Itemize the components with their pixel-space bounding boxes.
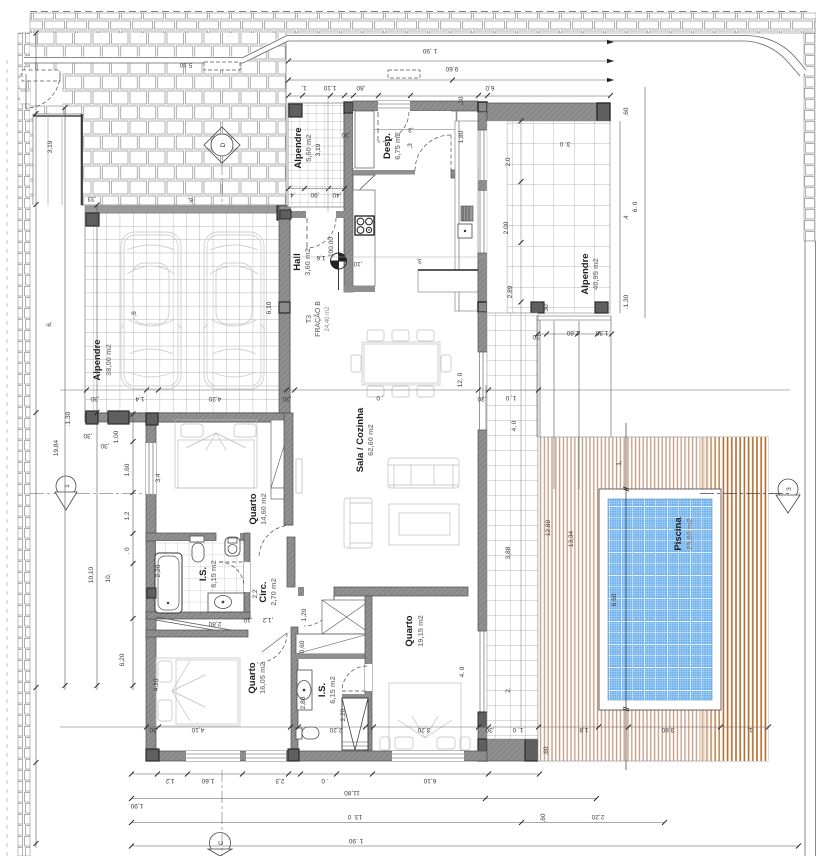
svg-text:1, 0: 1, 0 [505, 394, 516, 401]
svg-text:2,20: 2,20 [591, 813, 604, 820]
svg-text:,6: ,6 [131, 311, 138, 317]
svg-text:6,15 m2: 6,15 m2 [209, 560, 218, 588]
svg-text:4,10: 4,10 [153, 678, 160, 691]
svg-text:I.S.: I.S. [198, 567, 209, 581]
svg-text:0,60: 0,60 [299, 640, 306, 653]
svg-text:,1,2: ,1,2 [262, 616, 273, 623]
svg-text:,4: ,4 [290, 191, 296, 198]
svg-text:6,20: 6,20 [119, 653, 126, 666]
svg-text:.1,30: .1,30 [595, 329, 610, 336]
svg-text:1,10: 1,10 [323, 84, 336, 91]
svg-text:2.: 2. [505, 687, 512, 693]
svg-text:1 .90: 1 .90 [348, 837, 363, 844]
svg-text:Sala / Cozinha: Sala / Cozinha [355, 407, 366, 472]
svg-text:3,: 3, [416, 257, 422, 264]
svg-text:6,0: 6,0 [485, 84, 494, 91]
svg-text:16,05 m2: 16,05 m2 [258, 662, 267, 694]
svg-text:3,20: 3,20 [417, 726, 430, 733]
svg-text:4. 0: 4. 0 [459, 666, 466, 677]
svg-text:,30: ,30 [458, 96, 465, 105]
svg-text:12,89: 12,89 [545, 519, 552, 536]
svg-text:,30: ,30 [149, 726, 158, 733]
svg-text:1,8: 1,8 [579, 726, 588, 733]
svg-text:Quarto: Quarto [248, 493, 259, 524]
svg-text:.1,30: .1,30 [623, 294, 630, 309]
svg-text:3,4: 3,4 [155, 473, 162, 482]
svg-text:1,00: 1,00 [113, 430, 120, 443]
svg-text:,30: ,30 [100, 442, 109, 449]
svg-text:,30: ,30 [341, 131, 350, 138]
svg-text:2,20: 2,20 [340, 708, 347, 721]
svg-text:,30: ,30 [477, 395, 486, 402]
svg-text:1,4: 1,4 [135, 395, 144, 402]
svg-text:2.00: 2.00 [503, 221, 510, 234]
svg-text:T3: T3 [306, 315, 313, 323]
svg-text:,30: ,30 [90, 395, 99, 402]
svg-text:1,: 1, [301, 84, 307, 91]
svg-text:Desp.: Desp. [382, 133, 393, 159]
svg-text:3,19: 3,19 [47, 140, 54, 153]
svg-text:,80: ,80 [356, 84, 365, 91]
svg-text:,90: ,90 [310, 191, 319, 198]
svg-text:. 0: . 0 [124, 547, 131, 555]
svg-text:2,20: 2,20 [155, 564, 162, 577]
svg-text:Alpendre: Alpendre [293, 127, 304, 168]
svg-text:.60: .60 [623, 107, 630, 116]
svg-text:24,40 m2: 24,40 m2 [325, 306, 331, 332]
svg-text:5,10: 5,10 [179, 61, 192, 68]
svg-text:.1,30: .1,30 [65, 411, 72, 426]
svg-text:1,90: 1,90 [130, 802, 143, 809]
svg-text:6,: 6, [46, 321, 53, 327]
svg-text:19,84: 19,84 [53, 439, 60, 456]
svg-text:1,60: 1,60 [201, 777, 214, 784]
svg-text:2,2: 2,2 [252, 589, 259, 598]
svg-text:6,: 6, [187, 196, 193, 203]
svg-text:38,00 m2: 38,00 m2 [104, 344, 113, 376]
svg-text:6. 0: 6. 0 [632, 201, 639, 212]
svg-text:Quarto: Quarto [247, 662, 258, 693]
svg-text:Alpendre: Alpendre [92, 339, 103, 380]
svg-text:12, 0: 12, 0 [457, 372, 464, 387]
svg-text:,40: ,40 [332, 191, 341, 198]
svg-text:13,34: 13,34 [568, 530, 575, 547]
svg-text:,30: ,30 [282, 395, 291, 402]
svg-text:2.0: 2.0 [505, 157, 512, 166]
svg-text:4,10: 4,10 [191, 726, 204, 733]
svg-text:3,88: 3,88 [505, 546, 512, 559]
svg-text:I.S.: I.S. [317, 683, 328, 697]
svg-text:6,10: 6,10 [423, 777, 436, 784]
svg-text:1,: 1, [616, 460, 623, 466]
svg-text:5,60 m2: 5,60 m2 [304, 134, 313, 162]
svg-text:Hall: Hall [292, 253, 303, 270]
svg-text:10,10: 10,10 [88, 566, 95, 583]
svg-text:2,70 m2: 2,70 m2 [269, 578, 278, 606]
svg-text:1,: 1, [747, 726, 753, 733]
svg-text:3,60 m2: 3,60 m2 [303, 248, 312, 276]
svg-text:D: D [220, 142, 227, 147]
svg-text:,60: ,60 [540, 813, 547, 822]
svg-text:2,80: 2,80 [300, 696, 307, 709]
svg-text:2,20: 2,20 [329, 726, 342, 733]
svg-text:4,20: 4,20 [208, 395, 221, 402]
svg-text:11,80: 11,80 [344, 789, 360, 796]
svg-text:6,60: 6,60 [611, 593, 618, 606]
svg-text:.60: .60 [543, 746, 550, 755]
svg-text:3: 3 [786, 487, 793, 491]
svg-text:3,60: 3,60 [661, 726, 674, 733]
svg-text:,33: ,33 [87, 195, 96, 202]
svg-text:3,19: 3,19 [315, 143, 322, 156]
svg-text:1, 0: 1, 0 [512, 726, 523, 733]
svg-text:23,80 m2: 23,80 m2 [685, 518, 694, 550]
svg-text:1,6: 1,6 [316, 254, 325, 261]
svg-text:Piscina: Piscina [673, 517, 684, 551]
svg-text:,10: ,10 [353, 260, 362, 267]
svg-text:Circ.: Circ. [258, 581, 269, 602]
svg-text:1,80: 1,80 [458, 130, 465, 143]
svg-text:1,20: 1,20 [301, 608, 308, 621]
svg-text:100.00: 100.00 [328, 237, 335, 257]
svg-text:,10: ,10 [243, 616, 252, 623]
svg-text:2,3: 2,3 [275, 777, 284, 784]
svg-text:1,2: 1,2 [124, 511, 131, 520]
svg-text:FRAÇÃO B: FRAÇÃO B [313, 301, 322, 337]
svg-text:,3: ,3 [407, 143, 414, 149]
svg-text:6,10: 6,10 [266, 301, 273, 314]
svg-text:,30: ,30 [83, 432, 92, 439]
svg-text:62,60 m2: 62,60 m2 [366, 424, 375, 456]
svg-text:4, 0: 4, 0 [511, 420, 518, 431]
svg-text:19,15 m2: 19,15 m2 [416, 615, 425, 647]
svg-text:,30: ,30 [485, 726, 494, 733]
svg-text:2,80: 2,80 [208, 620, 221, 627]
svg-text:Alpendre: Alpendre [580, 253, 591, 294]
svg-text:40,95 m2: 40,95 m2 [591, 258, 600, 290]
svg-text:9,60: 9,60 [445, 65, 458, 72]
svg-text:6,75 m2: 6,75 m2 [393, 132, 402, 160]
svg-text:6,15 m2: 6,15 m2 [328, 676, 337, 704]
svg-text:1,2: 1,2 [165, 777, 174, 784]
svg-text:Quarto: Quarto [404, 615, 415, 646]
svg-text:1 ,90: 1 ,90 [422, 47, 437, 54]
svg-text:, 0: , 0 [376, 394, 384, 401]
svg-text:13. 0: 13. 0 [347, 813, 362, 820]
svg-text:C: C [218, 840, 225, 845]
svg-text:,3: ,3 [408, 126, 414, 133]
svg-text:1,60: 1,60 [566, 329, 579, 336]
svg-text:3. 0: 3. 0 [559, 140, 570, 147]
svg-text:1,60: 1,60 [124, 463, 131, 476]
svg-text:10,: 10, [105, 573, 112, 582]
svg-text:2.89: 2.89 [507, 285, 514, 298]
svg-text:30: 30 [543, 304, 550, 312]
svg-text:14,60 m2: 14,60 m2 [259, 493, 268, 525]
svg-text:. 0: . 0 [321, 777, 329, 784]
svg-text:.4: .4 [623, 215, 630, 221]
